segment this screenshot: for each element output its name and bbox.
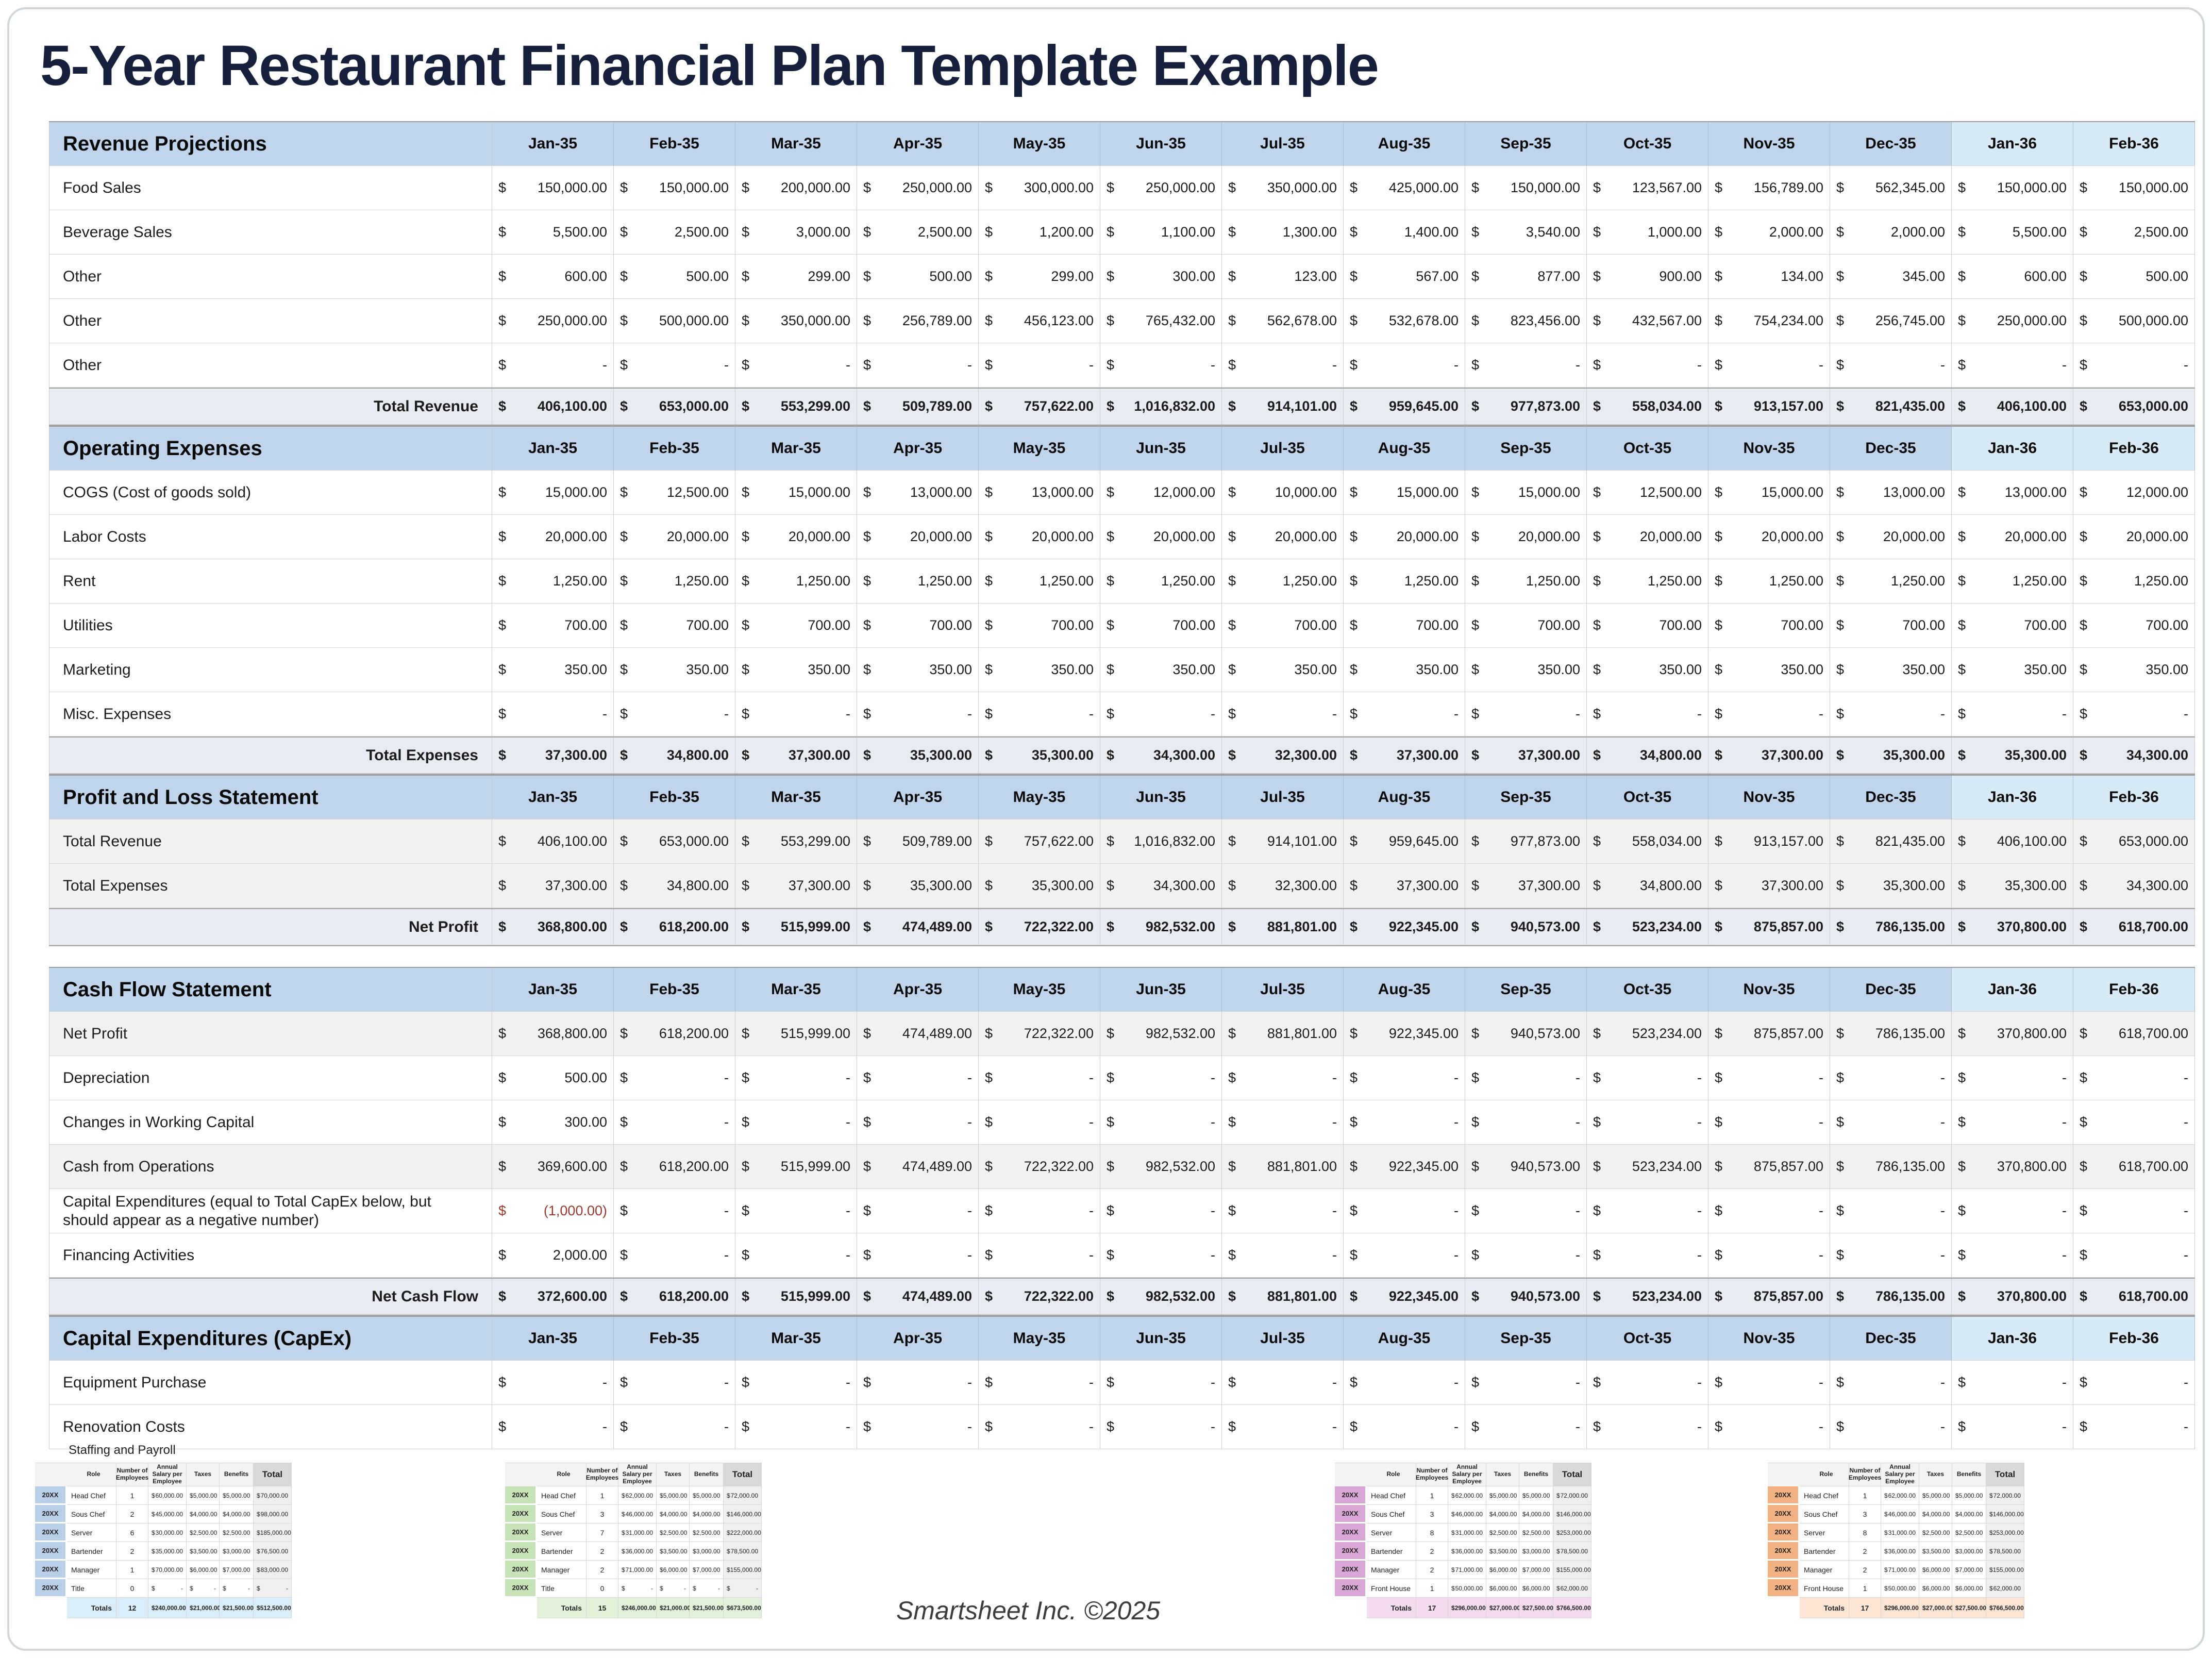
money-cell[interactable]: $35,300.00 <box>979 864 1100 908</box>
money-cell[interactable]: $- <box>1100 1100 1222 1145</box>
money-cell[interactable]: $515,999.00 <box>735 909 857 945</box>
money-cell[interactable]: $653,000.00 <box>614 819 735 864</box>
money-cell[interactable]: $- <box>1587 1189 1708 1233</box>
year-cell[interactable]: 20XX <box>1768 1561 1800 1579</box>
totals-money-cell[interactable]: $296,000.00 <box>1881 1598 1919 1618</box>
employee-count-cell[interactable]: 1 <box>1849 1486 1881 1505</box>
money-cell[interactable]: $- <box>1344 1233 1465 1278</box>
total-cell[interactable]: $72,000.00 <box>1986 1486 2024 1505</box>
taxes-cell[interactable]: $4,000.00 <box>657 1505 690 1523</box>
money-cell[interactable]: $700.00 <box>1344 604 1465 648</box>
benefits-cell[interactable]: $- <box>690 1579 724 1598</box>
month-header[interactable]: Dec-35 <box>1830 427 1952 471</box>
money-cell[interactable]: $922,345.00 <box>1344 1012 1465 1056</box>
money-cell[interactable]: $653,000.00 <box>2073 819 2195 864</box>
money-cell[interactable]: $2,000.00 <box>1708 210 1830 255</box>
row-label[interactable]: Depreciation <box>49 1056 492 1100</box>
money-cell[interactable]: $20,000.00 <box>1587 515 1708 559</box>
salary-cell[interactable]: $31,000.00 <box>618 1523 657 1542</box>
role-cell[interactable]: Sous Chef <box>1367 1505 1416 1523</box>
money-cell[interactable]: $150,000.00 <box>492 166 614 210</box>
month-header[interactable]: Jul-35 <box>1222 968 1344 1012</box>
taxes-cell[interactable]: $4,000.00 <box>1486 1505 1519 1523</box>
total-cell[interactable]: $62,000.00 <box>1553 1579 1591 1598</box>
salary-cell[interactable]: $62,000.00 <box>1448 1486 1486 1505</box>
taxes-cell[interactable]: $6,000.00 <box>1486 1561 1519 1579</box>
role-cell[interactable]: Manager <box>1367 1561 1416 1579</box>
employee-count-cell[interactable]: 1 <box>1416 1579 1448 1598</box>
money-cell[interactable]: $37,300.00 <box>1465 864 1587 908</box>
employee-count-cell[interactable]: 2 <box>586 1561 618 1579</box>
money-cell[interactable]: $1,250.00 <box>1952 559 2073 604</box>
money-cell[interactable]: $754,234.00 <box>1708 299 1830 343</box>
money-cell[interactable]: $600.00 <box>1952 255 2073 299</box>
money-cell[interactable]: $- <box>614 1056 735 1100</box>
money-cell[interactable]: $- <box>1587 1361 1708 1405</box>
benefits-cell[interactable]: $4,000.00 <box>1519 1505 1553 1523</box>
money-cell[interactable]: $474,489.00 <box>857 909 979 945</box>
benefits-cell[interactable]: $3,000.00 <box>220 1542 254 1561</box>
month-header[interactable]: Feb-35 <box>614 122 735 166</box>
money-cell[interactable]: $- <box>492 1405 614 1449</box>
month-header[interactable]: Feb-35 <box>614 1317 735 1361</box>
money-cell[interactable]: $515,999.00 <box>735 1012 857 1056</box>
money-cell[interactable]: $- <box>2073 343 2195 388</box>
money-cell[interactable]: $406,100.00 <box>1952 819 2073 864</box>
employee-count-cell[interactable]: 2 <box>1849 1542 1881 1561</box>
taxes-cell[interactable]: $5,000.00 <box>1919 1486 1952 1505</box>
money-cell[interactable]: $1,000.00 <box>1587 210 1708 255</box>
month-header[interactable]: Apr-35 <box>857 1317 979 1361</box>
money-cell[interactable]: $1,016,832.00 <box>1100 389 1222 425</box>
money-cell[interactable]: $875,857.00 <box>1708 909 1830 945</box>
money-cell[interactable]: $2,500.00 <box>857 210 979 255</box>
money-cell[interactable]: $123,567.00 <box>1587 166 1708 210</box>
money-cell[interactable]: $- <box>1465 1189 1587 1233</box>
money-cell[interactable]: $474,489.00 <box>857 1279 979 1315</box>
money-cell[interactable]: $20,000.00 <box>979 515 1100 559</box>
benefits-cell[interactable]: $3,000.00 <box>690 1542 724 1561</box>
money-cell[interactable]: $34,800.00 <box>1587 864 1708 908</box>
money-cell[interactable]: $700.00 <box>979 604 1100 648</box>
benefits-cell[interactable]: $6,000.00 <box>1952 1579 1986 1598</box>
money-cell[interactable]: $200,000.00 <box>735 166 857 210</box>
salary-cell[interactable]: $31,000.00 <box>1881 1523 1919 1542</box>
month-header[interactable]: Jun-35 <box>1100 122 1222 166</box>
money-cell[interactable]: $1,250.00 <box>1587 559 1708 604</box>
total-cell[interactable]: $253,000.00 <box>1553 1523 1591 1542</box>
money-cell[interactable]: $982,532.00 <box>1100 1279 1222 1315</box>
total-cell[interactable]: $70,000.00 <box>254 1486 292 1505</box>
salary-cell[interactable]: $62,000.00 <box>618 1486 657 1505</box>
money-cell[interactable]: $20,000.00 <box>1465 515 1587 559</box>
row-label[interactable]: Utilities <box>49 604 492 648</box>
money-cell[interactable]: $982,532.00 <box>1100 909 1222 945</box>
employee-count-cell[interactable]: 1 <box>1416 1486 1448 1505</box>
money-cell[interactable]: $- <box>1708 343 1830 388</box>
money-cell[interactable]: $653,000.00 <box>614 389 735 425</box>
money-cell[interactable]: $13,000.00 <box>979 471 1100 515</box>
money-cell[interactable]: $- <box>2073 1405 2195 1449</box>
money-cell[interactable]: $- <box>1830 1405 1952 1449</box>
money-cell[interactable]: $20,000.00 <box>857 515 979 559</box>
month-header[interactable]: Dec-35 <box>1830 968 1952 1012</box>
money-cell[interactable]: $618,700.00 <box>2073 1145 2195 1189</box>
month-header[interactable]: Feb-36 <box>2073 1317 2195 1361</box>
money-cell[interactable]: $- <box>735 1056 857 1100</box>
employee-count-cell[interactable]: 2 <box>116 1505 148 1523</box>
money-cell[interactable]: $350.00 <box>1708 648 1830 692</box>
money-cell[interactable]: $618,200.00 <box>614 1279 735 1315</box>
taxes-cell[interactable]: $6,000.00 <box>657 1561 690 1579</box>
money-cell[interactable]: $1,250.00 <box>1344 559 1465 604</box>
totals-money-cell[interactable]: $27,000.00 <box>1919 1598 1952 1618</box>
employee-count-cell[interactable]: 8 <box>1416 1523 1448 1542</box>
benefits-cell[interactable]: $5,000.00 <box>1952 1486 1986 1505</box>
benefits-cell[interactable]: $3,000.00 <box>1952 1542 1986 1561</box>
month-header[interactable]: Jan-35 <box>492 968 614 1012</box>
month-header[interactable]: Aug-35 <box>1344 427 1465 471</box>
money-cell[interactable]: $350.00 <box>2073 648 2195 692</box>
money-cell[interactable]: $1,250.00 <box>614 559 735 604</box>
money-cell[interactable]: $922,345.00 <box>1344 1279 1465 1315</box>
money-cell[interactable]: $922,345.00 <box>1344 909 1465 945</box>
money-cell[interactable]: $- <box>857 1189 979 1233</box>
money-cell[interactable]: $10,000.00 <box>1222 471 1344 515</box>
money-cell[interactable]: $- <box>979 1405 1100 1449</box>
salary-cell[interactable]: $31,000.00 <box>1448 1523 1486 1542</box>
totals-money-cell[interactable]: $673,500.00 <box>724 1598 762 1618</box>
total-cell[interactable]: $146,000.00 <box>1986 1505 2024 1523</box>
row-label[interactable]: Other <box>49 343 492 388</box>
money-cell[interactable]: $- <box>1708 1189 1830 1233</box>
month-header[interactable]: May-35 <box>979 1317 1100 1361</box>
role-cell[interactable]: Head Chef <box>1800 1486 1849 1505</box>
money-cell[interactable]: $- <box>1587 1056 1708 1100</box>
salary-cell[interactable]: $45,000.00 <box>148 1505 187 1523</box>
total-cell[interactable]: $98,000.00 <box>254 1505 292 1523</box>
money-cell[interactable]: $700.00 <box>2073 604 2195 648</box>
money-cell[interactable]: $406,100.00 <box>492 819 614 864</box>
year-cell[interactable]: 20XX <box>1335 1542 1367 1561</box>
money-cell[interactable]: $- <box>1952 1100 2073 1145</box>
role-cell[interactable]: Head Chef <box>537 1486 586 1505</box>
money-cell[interactable]: $- <box>1830 1100 1952 1145</box>
salary-cell[interactable]: $71,000.00 <box>1448 1561 1486 1579</box>
money-cell[interactable]: $- <box>1708 1361 1830 1405</box>
money-cell[interactable]: $3,540.00 <box>1465 210 1587 255</box>
money-cell[interactable]: $757,622.00 <box>979 389 1100 425</box>
money-cell[interactable]: $- <box>1587 692 1708 736</box>
money-cell[interactable]: $700.00 <box>492 604 614 648</box>
month-header[interactable]: Jan-36 <box>1952 427 2073 471</box>
money-cell[interactable]: $- <box>1465 692 1587 736</box>
month-header[interactable]: Jan-36 <box>1952 122 2073 166</box>
money-cell[interactable]: $1,250.00 <box>1100 559 1222 604</box>
money-cell[interactable]: $881,801.00 <box>1222 1012 1344 1056</box>
money-cell[interactable]: $- <box>857 1056 979 1100</box>
money-cell[interactable]: $- <box>2073 1056 2195 1100</box>
money-cell[interactable]: $500.00 <box>857 255 979 299</box>
year-cell[interactable]: 20XX <box>35 1505 67 1523</box>
money-cell[interactable]: $722,322.00 <box>979 909 1100 945</box>
salary-cell[interactable]: $36,000.00 <box>1881 1542 1919 1561</box>
money-cell[interactable]: $37,300.00 <box>492 738 614 774</box>
money-cell[interactable]: $37,300.00 <box>492 864 614 908</box>
benefits-cell[interactable]: $- <box>220 1579 254 1598</box>
month-header[interactable]: Mar-35 <box>735 968 857 1012</box>
month-header[interactable]: Sep-35 <box>1465 427 1587 471</box>
money-cell[interactable]: $515,999.00 <box>735 1145 857 1189</box>
salary-cell[interactable]: $71,000.00 <box>1881 1561 1919 1579</box>
money-cell[interactable]: $500.00 <box>2073 255 2195 299</box>
money-cell[interactable]: $- <box>2073 1233 2195 1278</box>
money-cell[interactable]: $- <box>1222 1361 1344 1405</box>
money-cell[interactable]: $- <box>2073 1361 2195 1405</box>
money-cell[interactable]: $368,800.00 <box>492 1012 614 1056</box>
money-cell[interactable]: $509,789.00 <box>857 819 979 864</box>
employee-count-cell[interactable]: 0 <box>116 1579 148 1598</box>
money-cell[interactable]: $- <box>1830 692 1952 736</box>
total-cell[interactable]: $76,500.00 <box>254 1542 292 1561</box>
money-cell[interactable]: $515,999.00 <box>735 1279 857 1315</box>
money-cell[interactable]: $- <box>614 1361 735 1405</box>
employee-count-cell[interactable]: 1 <box>116 1561 148 1579</box>
money-cell[interactable]: $823,456.00 <box>1465 299 1587 343</box>
money-cell[interactable]: $- <box>2073 1100 2195 1145</box>
total-cell[interactable]: $78,500.00 <box>724 1542 762 1561</box>
benefits-cell[interactable]: $2,500.00 <box>690 1523 724 1542</box>
money-cell[interactable]: $15,000.00 <box>735 471 857 515</box>
money-cell[interactable]: $372,600.00 <box>492 1279 614 1315</box>
total-cell[interactable]: $155,000.00 <box>1553 1561 1591 1579</box>
money-cell[interactable]: $2,500.00 <box>2073 210 2195 255</box>
month-header[interactable]: Oct-35 <box>1587 968 1708 1012</box>
money-cell[interactable]: $567.00 <box>1344 255 1465 299</box>
money-cell[interactable]: $2,000.00 <box>1830 210 1952 255</box>
money-cell[interactable]: $34,300.00 <box>2073 738 2195 774</box>
money-cell[interactable]: $34,300.00 <box>1100 864 1222 908</box>
month-header[interactable]: May-35 <box>979 776 1100 819</box>
benefits-cell[interactable]: $5,000.00 <box>690 1486 724 1505</box>
money-cell[interactable]: $- <box>1100 1361 1222 1405</box>
money-cell[interactable]: $350.00 <box>614 648 735 692</box>
employee-count-cell[interactable]: 7 <box>586 1523 618 1542</box>
row-label[interactable]: COGS (Cost of goods sold) <box>49 471 492 515</box>
year-cell[interactable]: 20XX <box>1335 1505 1367 1523</box>
money-cell[interactable]: $- <box>735 1405 857 1449</box>
salary-cell[interactable]: $60,000.00 <box>148 1486 187 1505</box>
money-cell[interactable]: $- <box>979 1056 1100 1100</box>
month-header[interactable]: May-35 <box>979 427 1100 471</box>
month-header[interactable]: Jul-35 <box>1222 1317 1344 1361</box>
benefits-cell[interactable]: $5,000.00 <box>1519 1486 1553 1505</box>
money-cell[interactable]: $150,000.00 <box>1465 166 1587 210</box>
year-cell[interactable]: 20XX <box>35 1579 67 1598</box>
money-cell[interactable]: $500,000.00 <box>614 299 735 343</box>
money-cell[interactable]: $- <box>2073 692 2195 736</box>
money-cell[interactable]: $- <box>1222 1233 1344 1278</box>
role-cell[interactable]: Server <box>1800 1523 1849 1542</box>
employee-count-cell[interactable]: 3 <box>1849 1505 1881 1523</box>
money-cell[interactable]: $- <box>1708 1056 1830 1100</box>
money-cell[interactable]: $- <box>979 1361 1100 1405</box>
row-label[interactable]: Marketing <box>49 648 492 692</box>
money-cell[interactable]: $- <box>979 1189 1100 1233</box>
money-cell[interactable]: $877.00 <box>1465 255 1587 299</box>
role-cell[interactable]: Manager <box>537 1561 586 1579</box>
money-cell[interactable]: $618,200.00 <box>614 1145 735 1189</box>
money-cell[interactable]: $562,678.00 <box>1222 299 1344 343</box>
total-cell[interactable]: $62,000.00 <box>1986 1579 2024 1598</box>
money-cell[interactable]: $350.00 <box>735 648 857 692</box>
month-header[interactable]: Jul-35 <box>1222 427 1344 471</box>
taxes-cell[interactable]: $2,500.00 <box>1486 1523 1519 1542</box>
employee-count-cell[interactable]: 2 <box>1416 1561 1448 1579</box>
money-cell[interactable]: $1,250.00 <box>735 559 857 604</box>
row-label[interactable]: Cash from Operations <box>49 1145 492 1189</box>
employee-count-cell[interactable]: 1 <box>1849 1579 1881 1598</box>
totals-money-cell[interactable]: $766,500.00 <box>1986 1598 2024 1618</box>
row-label[interactable]: Labor Costs <box>49 515 492 559</box>
row-label[interactable]: Capital Expenditures (equal to Total Cap… <box>49 1189 492 1233</box>
money-cell[interactable]: $700.00 <box>1830 604 1952 648</box>
money-cell[interactable]: $- <box>614 1405 735 1449</box>
money-cell[interactable]: $350,000.00 <box>735 299 857 343</box>
money-cell[interactable]: $- <box>1222 1189 1344 1233</box>
money-cell[interactable]: $- <box>1344 692 1465 736</box>
year-cell[interactable]: 20XX <box>1335 1561 1367 1579</box>
money-cell[interactable]: $250,000.00 <box>857 166 979 210</box>
money-cell[interactable]: $- <box>979 1100 1100 1145</box>
money-cell[interactable]: $558,034.00 <box>1587 389 1708 425</box>
month-header[interactable]: Aug-35 <box>1344 122 1465 166</box>
money-cell[interactable]: $300.00 <box>1100 255 1222 299</box>
totals-money-cell[interactable]: $27,000.00 <box>1486 1598 1519 1618</box>
taxes-cell[interactable]: $6,000.00 <box>1486 1579 1519 1598</box>
month-header[interactable]: Oct-35 <box>1587 776 1708 819</box>
role-cell[interactable]: Server <box>1367 1523 1416 1542</box>
money-cell[interactable]: $35,300.00 <box>1830 864 1952 908</box>
money-cell[interactable]: $370,800.00 <box>1952 909 2073 945</box>
money-cell[interactable]: $875,857.00 <box>1708 1145 1830 1189</box>
money-cell[interactable]: $618,700.00 <box>2073 909 2195 945</box>
month-header[interactable]: Jun-35 <box>1100 968 1222 1012</box>
money-cell[interactable]: $474,489.00 <box>857 1145 979 1189</box>
money-cell[interactable]: $350.00 <box>857 648 979 692</box>
money-cell[interactable]: $1,250.00 <box>2073 559 2195 604</box>
total-cell[interactable]: $78,500.00 <box>1553 1542 1591 1561</box>
money-cell[interactable]: $977,873.00 <box>1465 389 1587 425</box>
month-header[interactable]: Sep-35 <box>1465 776 1587 819</box>
year-cell[interactable]: 20XX <box>505 1579 537 1598</box>
money-cell[interactable]: $- <box>1587 343 1708 388</box>
year-cell[interactable]: 20XX <box>35 1542 67 1561</box>
money-cell[interactable]: $37,300.00 <box>1344 864 1465 908</box>
money-cell[interactable]: $- <box>1222 1100 1344 1145</box>
benefits-cell[interactable]: $2,500.00 <box>1952 1523 1986 1542</box>
month-header[interactable]: Feb-36 <box>2073 122 2195 166</box>
money-cell[interactable]: $1,400.00 <box>1344 210 1465 255</box>
money-cell[interactable]: $20,000.00 <box>2073 515 2195 559</box>
month-header[interactable]: Sep-35 <box>1465 968 1587 1012</box>
totals-money-cell[interactable]: $21,500.00 <box>220 1598 254 1618</box>
month-header[interactable]: Jan-36 <box>1952 1317 2073 1361</box>
month-header[interactable]: Feb-36 <box>2073 776 2195 819</box>
money-cell[interactable]: $34,800.00 <box>614 864 735 908</box>
money-cell[interactable]: $- <box>1344 343 1465 388</box>
money-cell[interactable]: $256,745.00 <box>1830 299 1952 343</box>
year-cell[interactable]: 20XX <box>505 1505 537 1523</box>
money-cell[interactable]: $- <box>1344 1361 1465 1405</box>
month-header[interactable]: May-35 <box>979 968 1100 1012</box>
month-header[interactable]: Jun-35 <box>1100 427 1222 471</box>
benefits-cell[interactable]: $7,000.00 <box>690 1561 724 1579</box>
money-cell[interactable]: $- <box>857 1233 979 1278</box>
money-cell[interactable]: $- <box>1952 1189 2073 1233</box>
money-cell[interactable]: $757,622.00 <box>979 819 1100 864</box>
money-cell[interactable]: $875,857.00 <box>1708 1279 1830 1315</box>
year-cell[interactable]: 20XX <box>1768 1579 1800 1598</box>
money-cell[interactable]: $700.00 <box>1587 604 1708 648</box>
taxes-cell[interactable]: $- <box>187 1579 220 1598</box>
taxes-cell[interactable]: $3,500.00 <box>1919 1542 1952 1561</box>
money-cell[interactable]: $523,234.00 <box>1587 909 1708 945</box>
totals-money-cell[interactable]: $246,000.00 <box>618 1598 657 1618</box>
role-cell[interactable]: Sous Chef <box>537 1505 586 1523</box>
employee-count-cell[interactable]: 3 <box>586 1505 618 1523</box>
role-cell[interactable]: Head Chef <box>1367 1486 1416 1505</box>
month-header[interactable]: Nov-35 <box>1708 122 1830 166</box>
money-cell[interactable]: $700.00 <box>1100 604 1222 648</box>
money-cell[interactable]: $370,800.00 <box>1952 1012 2073 1056</box>
money-cell[interactable]: $700.00 <box>1222 604 1344 648</box>
money-cell[interactable]: $250,000.00 <box>1100 166 1222 210</box>
money-cell[interactable]: $922,345.00 <box>1344 1145 1465 1189</box>
benefits-cell[interactable]: $4,000.00 <box>690 1505 724 1523</box>
month-header[interactable]: Nov-35 <box>1708 1317 1830 1361</box>
totals-money-cell[interactable]: $21,000.00 <box>657 1598 690 1618</box>
money-cell[interactable]: $12,500.00 <box>1587 471 1708 515</box>
month-header[interactable]: Jan-36 <box>1952 968 2073 1012</box>
salary-cell[interactable]: $- <box>618 1579 657 1598</box>
year-cell[interactable]: 20XX <box>1768 1542 1800 1561</box>
money-cell[interactable]: $20,000.00 <box>1708 515 1830 559</box>
money-cell[interactable]: $123.00 <box>1222 255 1344 299</box>
money-cell[interactable]: $1,250.00 <box>492 559 614 604</box>
money-cell[interactable]: $523,234.00 <box>1587 1279 1708 1315</box>
role-cell[interactable]: Server <box>67 1523 116 1542</box>
money-cell[interactable]: $2,500.00 <box>614 210 735 255</box>
money-cell[interactable]: $15,000.00 <box>1344 471 1465 515</box>
money-cell[interactable]: $370,800.00 <box>1952 1145 2073 1189</box>
money-cell[interactable]: $- <box>1830 343 1952 388</box>
total-cell[interactable]: $72,000.00 <box>724 1486 762 1505</box>
month-header[interactable]: Jan-35 <box>492 1317 614 1361</box>
money-cell[interactable]: $250,000.00 <box>492 299 614 343</box>
money-cell[interactable]: $- <box>1222 1056 1344 1100</box>
role-cell[interactable]: Manager <box>67 1561 116 1579</box>
money-cell[interactable]: $959,645.00 <box>1344 389 1465 425</box>
money-cell[interactable]: $- <box>857 692 979 736</box>
money-cell[interactable]: $- <box>857 1361 979 1405</box>
money-cell[interactable]: $821,435.00 <box>1830 819 1952 864</box>
money-cell[interactable]: $37,300.00 <box>1465 738 1587 774</box>
benefits-cell[interactable]: $7,000.00 <box>1952 1561 1986 1579</box>
month-header[interactable]: Jan-35 <box>492 122 614 166</box>
money-cell[interactable]: $618,700.00 <box>2073 1279 2195 1315</box>
employee-count-cell[interactable]: 2 <box>1416 1542 1448 1561</box>
